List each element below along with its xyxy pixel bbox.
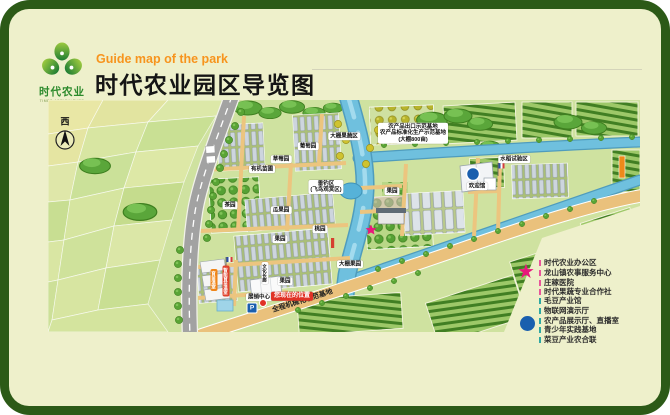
header-divider: [312, 69, 642, 70]
label-greenhouse-zone: 大棚果蔬区: [328, 132, 360, 140]
legend-star-icon: ★: [517, 262, 535, 282]
compass-west-label: 西: [60, 115, 69, 128]
label-strawberry: 草莓园: [271, 155, 292, 163]
legend-item: 庄稼医院: [539, 278, 659, 288]
label-melon: 瓜果园: [271, 206, 292, 214]
label-grape: 葡萄园: [298, 142, 319, 150]
label-orchard1: 果园: [272, 235, 287, 243]
label-nursery: 有机苗圃: [249, 165, 275, 173]
legend-item: 时代农业办公区: [539, 258, 659, 268]
label-orchard3: 果园: [384, 187, 399, 195]
label-base: 农产品出口示范基地 农产品标准化生产示范基地 (大棚800亩): [378, 123, 448, 144]
legend-dot-icon: [520, 316, 535, 331]
parking-sign: P: [247, 303, 258, 314]
legend-item: 农产品展示厅、直播室: [539, 316, 659, 326]
small-red-sign: [331, 238, 334, 248]
legend-dot-list: 毛豆产业馆 物联网演示厅 农产品展示厅、直播室 青少年实践基地 菜豆产业农合联: [539, 296, 659, 345]
legend-item: 物联网演示厅: [539, 306, 659, 316]
label-seedling-red: 智能育苗温室: [223, 266, 230, 297]
logo: 时代农业 TIMES AGRICULTURE: [34, 42, 90, 103]
blue-dot-marker: [467, 168, 480, 181]
legend-item: 龙山镇农事服务中心: [539, 268, 659, 278]
you-are-here-label: 您现在的位置: [271, 292, 313, 301]
label-peach: 桃园: [312, 225, 327, 233]
label-tea: 茶园: [222, 201, 237, 209]
logo-emblem-icon: [40, 42, 84, 78]
label-welcome-hall: 欢迎馆: [467, 182, 488, 190]
pool: [217, 300, 233, 311]
legend-item: 青少年实践基地: [539, 325, 659, 335]
label-seedling-orange: 育苗温室: [211, 269, 218, 291]
label-rice: 水稻试验区: [498, 155, 530, 163]
logo-name-cn: 时代农业: [34, 84, 90, 99]
you-are-here-dot: [259, 299, 267, 307]
label-fishing: 垂钓区 (飞鸟观赏区): [308, 180, 343, 194]
subtitle-en: Guide map of the park: [96, 52, 228, 66]
compass-icon: [56, 130, 74, 149]
orange-sign: [619, 156, 625, 178]
label-orchard2: 果园: [277, 277, 292, 285]
legend-item: 菜豆产业农合联: [539, 335, 659, 345]
label-corridor: 文化长廊: [262, 262, 269, 284]
page-title: 时代农业园区导览图: [95, 66, 316, 100]
legend-item: 毛豆产业馆: [539, 296, 659, 306]
legend-star-list: 时代农业办公区 龙山镇农事服务中心 庄稼医院 时代果蔬专业合作社: [539, 258, 659, 297]
label-greenhouse-orchard: 大棚果园: [337, 260, 363, 268]
